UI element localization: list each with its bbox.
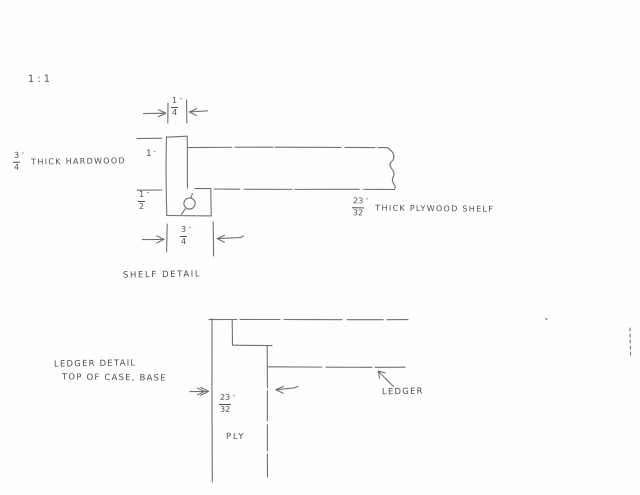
inch-mark: ″ xyxy=(180,97,183,105)
plywood-thickness-label: 23 32 ″ THICK PLYWOOD SHELF xyxy=(352,197,494,218)
ledger-detail-caption-line1: LEDGER DETAIL xyxy=(54,358,136,369)
inch-mark: ″ xyxy=(366,197,369,205)
hardwood-thickness-label: 3 4 ″ THICK HARDWOOD xyxy=(13,150,126,172)
dim-arrow-right-bottom xyxy=(217,235,243,242)
inch-mark: ″ xyxy=(153,150,156,158)
inch-mark: ″ xyxy=(21,152,24,160)
dim-tick-left-bottom xyxy=(167,224,168,252)
ledger-detail-drawing xyxy=(190,319,631,482)
plywood-bottom-line xyxy=(214,189,394,190)
hardwood-fraction: 3 4 xyxy=(13,152,20,172)
inch-mark: ″ xyxy=(189,226,192,234)
scale-note: 1:1 xyxy=(28,74,53,86)
shelf-detail-drawing xyxy=(137,100,395,256)
dim-edge-width-top: 1 4 ″ xyxy=(171,97,182,117)
shelf-detail-caption: SHELF DETAIL xyxy=(123,269,201,280)
dim-arrow-left-ply xyxy=(190,387,209,395)
dim-arrow-left-top xyxy=(144,110,166,117)
inch-mark: ″ xyxy=(147,191,150,199)
linework-layer xyxy=(0,0,640,495)
plywood-fraction: 23 32 xyxy=(352,197,364,217)
dim-below-ply: 1 2 ″ xyxy=(138,191,149,211)
scanned-drawing-page: 1:1 3 4 ″ THICK HARDWOOD 1 4 ″ 1 ″ 1 2 ″… xyxy=(0,0,640,495)
ledger-pointer-arrow xyxy=(378,371,393,386)
hardwood-label-text: THICK HARDWOOD xyxy=(31,156,126,166)
dim-bottom-fraction: 3 4 xyxy=(180,226,187,246)
dim-edge-width-bottom: 3 4 ″ xyxy=(180,226,191,246)
ledger-callout-label: LEDGER xyxy=(382,387,424,398)
case-ply-text: PLY xyxy=(226,432,245,442)
case-ply-fraction: 23 32 xyxy=(219,394,231,414)
hardwood-edge-top-line xyxy=(167,136,188,137)
dim-arrow-right-ply xyxy=(276,386,298,393)
dim-top-fraction: 1 4 xyxy=(171,97,178,117)
scan-edge-artifact xyxy=(630,328,631,355)
dim-below-fraction: 1 2 xyxy=(138,191,145,211)
dim-height-value: 1 xyxy=(146,149,152,159)
plywood-label-text: THICK PLYWOOD SHELF xyxy=(375,203,494,213)
dim-arrow-left-bottom xyxy=(143,236,165,243)
dim-arrow-right-top xyxy=(189,109,207,116)
circled-q-mark-tail xyxy=(182,194,193,215)
plywood-break-line xyxy=(387,148,395,190)
dim-edge-height: 1 ″ xyxy=(146,149,156,159)
hardwood-edge-left-line xyxy=(166,137,167,216)
inch-mark: ″ xyxy=(233,394,236,402)
ledger-detail-caption-line2: TOP OF CASE, BASE xyxy=(62,372,167,383)
case-ply-dimension: 23 32 ″ xyxy=(219,394,235,414)
circled-q-mark-icon xyxy=(184,198,195,209)
